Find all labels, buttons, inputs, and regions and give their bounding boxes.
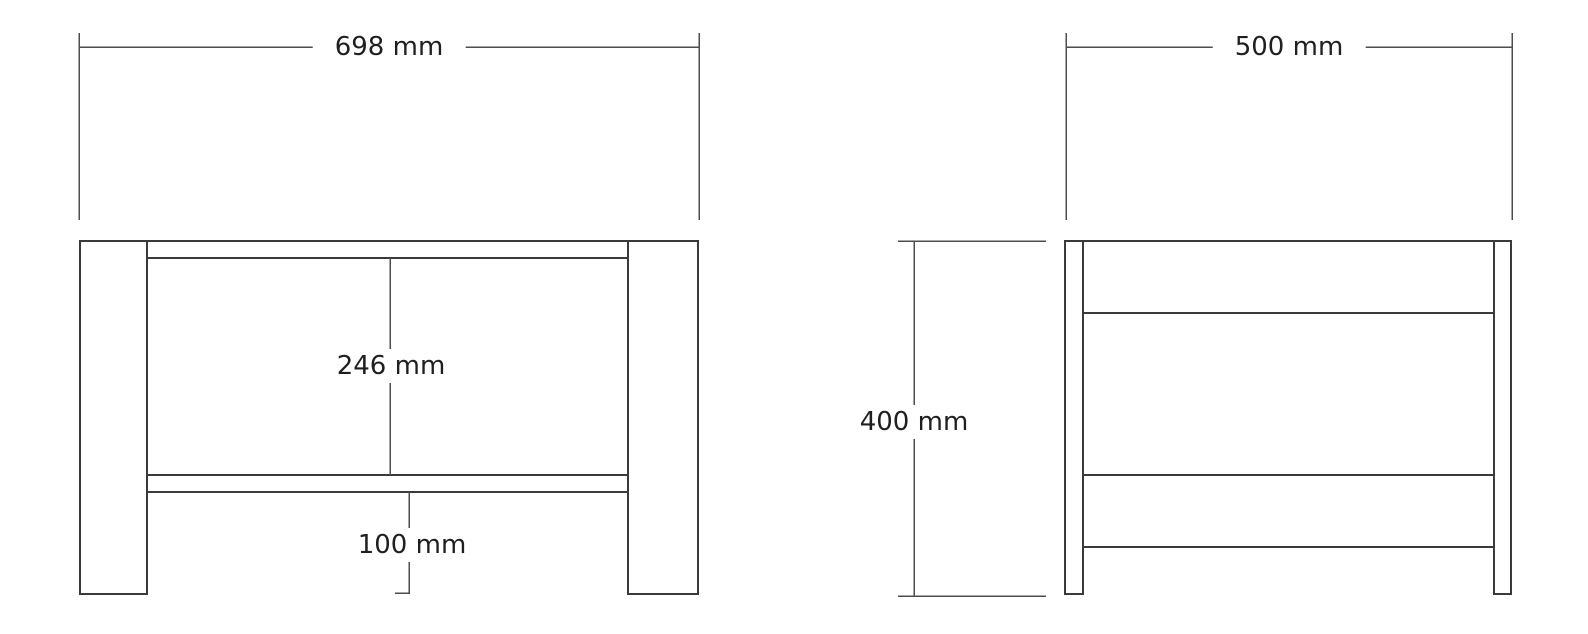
- drawing-lines: [0, 0, 1588, 634]
- height-dimension-label: 400 mm: [852, 405, 977, 439]
- side-view: [1064, 240, 1512, 595]
- clearance-dimension-label: 100 mm: [350, 528, 475, 562]
- interior-height-dimension-label: 246 mm: [329, 349, 454, 383]
- dimension-lines: [79, 33, 1512, 596]
- width-dimension-label: 698 mm: [313, 32, 466, 62]
- depth-dimension-label: 500 mm: [1213, 32, 1366, 62]
- technical-drawing: 698 mm 500 mm 246 mm 400 mm 100 mm: [0, 0, 1588, 634]
